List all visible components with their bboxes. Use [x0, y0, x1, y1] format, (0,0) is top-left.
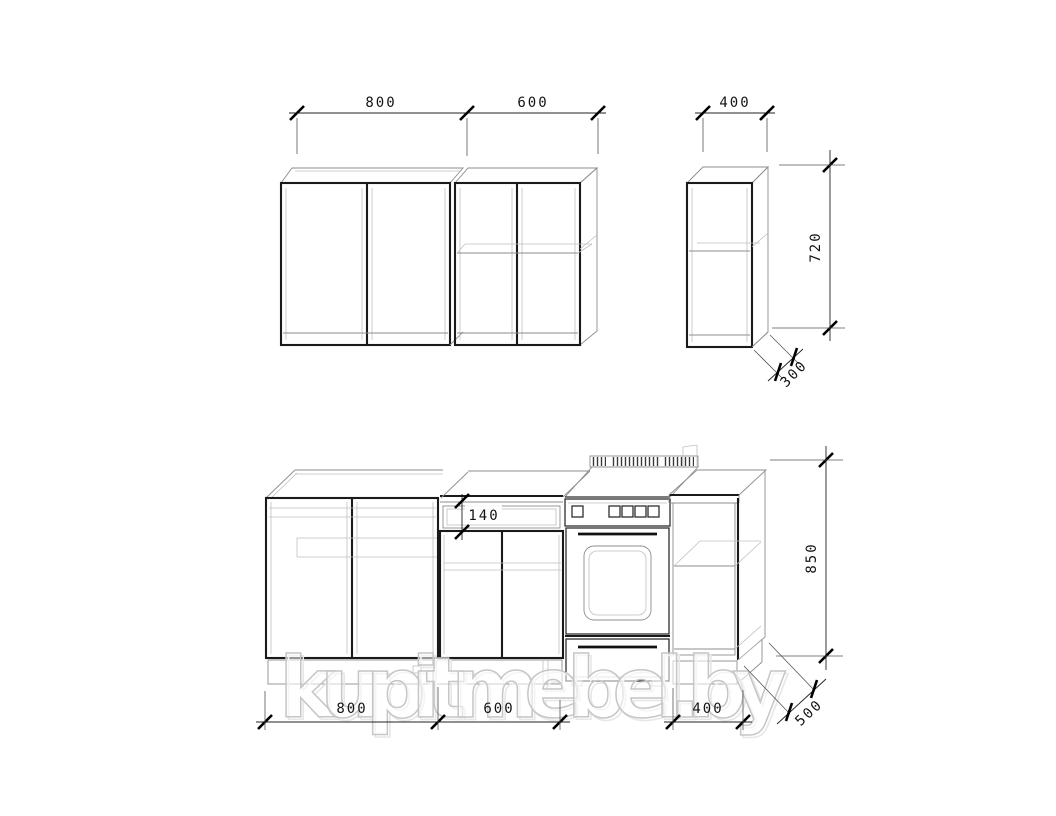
dim-lower-800: 800: [336, 701, 367, 717]
stove-control-panel: [565, 499, 670, 526]
dim-drawer-140: 140: [455, 494, 502, 540]
kitchen-dimension-drawing: 800 600 400 720 300: [0, 0, 1056, 816]
wall-cabinet-600-shelf: [457, 235, 597, 253]
dim-lower-height-850: 850: [804, 542, 820, 573]
wall-cabinet-800: [281, 168, 463, 345]
base-cabinet-800-shelf: [297, 538, 437, 557]
dim-upper-depth-300: 300: [777, 357, 810, 390]
dim-upper-600: 600: [517, 95, 548, 111]
stove-knob: [609, 506, 620, 517]
wall-cabinet-600: [455, 168, 597, 345]
stove-burner-strip: [590, 456, 698, 467]
base-cabinet-800: [266, 470, 443, 658]
dim-upper-height-720: 720: [808, 231, 824, 262]
wall-cabinet-400: [687, 167, 768, 347]
base-cabinet-400-shelf: [674, 541, 761, 566]
watermark: kupitmebel.by kupitmebel.by: [279, 639, 790, 740]
dim-upper-400: 400: [719, 95, 750, 111]
wall-cabinet-400-shelf: [689, 233, 768, 251]
stove-knob: [572, 506, 583, 517]
stove-oven-door: [566, 528, 669, 634]
stove-knob: [622, 506, 633, 517]
stove-knob: [635, 506, 646, 517]
dim-upper-800: 800: [365, 95, 396, 111]
dim-lower-600: 600: [483, 701, 514, 717]
upper-wall-cabinets: [281, 167, 768, 347]
dim-lower-400: 400: [692, 701, 723, 717]
stove-knob: [648, 506, 659, 517]
dim-lower-140: 140: [468, 508, 499, 524]
dim-lower-depth-500: 500: [792, 697, 826, 730]
